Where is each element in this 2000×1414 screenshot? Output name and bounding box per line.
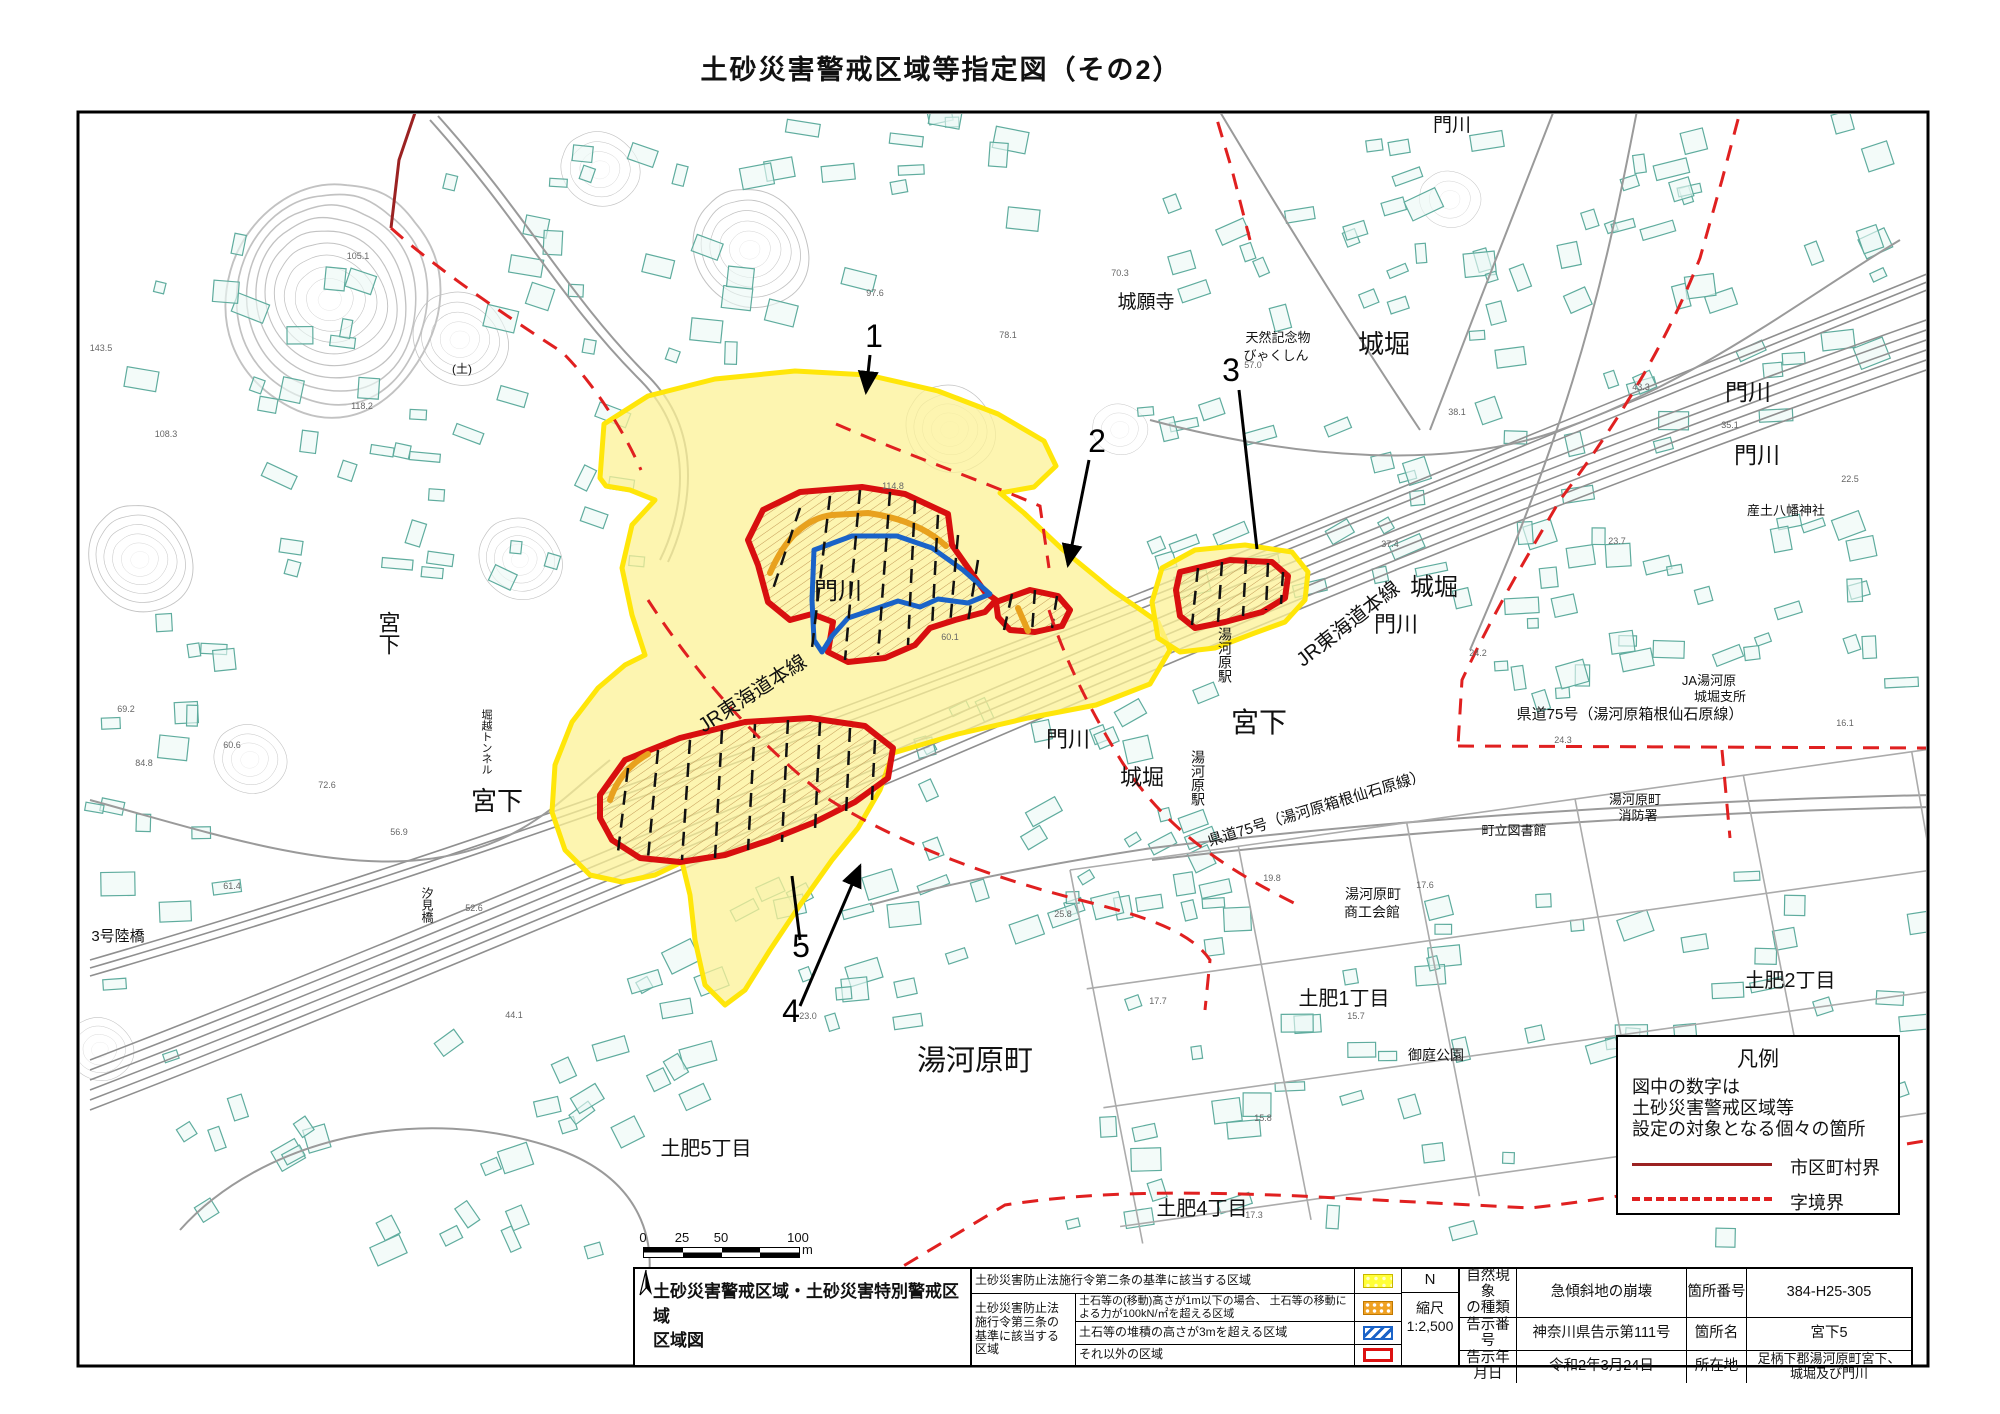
- map-sheet: 土砂災害警戒区域等指定図（その2）: [0, 0, 2000, 1414]
- title-block: 土砂災害警戒区域・土砂災害特別警戒区域 区域図 土砂災害防止法施行令第二条の基準…: [633, 1267, 1913, 1367]
- info-value: 神奈川県告示第111号: [1517, 1318, 1687, 1351]
- spot-elevation: 70.3: [1111, 268, 1129, 278]
- spot-elevation: 19.8: [1263, 873, 1281, 883]
- area-number: 4: [782, 993, 800, 1029]
- map-label: 城堀: [1358, 329, 1410, 359]
- map-label: 土肥5丁目: [660, 1137, 751, 1160]
- spot-elevation: 61.4: [223, 881, 241, 891]
- spot-elevation: 60.1: [941, 632, 959, 642]
- scale-tick-0: 0: [639, 1230, 646, 1245]
- spot-elevation: 22.5: [1841, 474, 1859, 484]
- map-label: 商工会館: [1344, 904, 1400, 920]
- map-label: 門川: [1046, 727, 1090, 752]
- scale-label: 縮尺: [1402, 1298, 1458, 1318]
- map-label: (土): [452, 362, 472, 376]
- map-label: 湯河原駅: [1190, 749, 1206, 806]
- info-label: 告示年月日: [1460, 1351, 1517, 1383]
- swatch-blue-accumulation: [1363, 1326, 1393, 1340]
- map-label: 湯河原駅: [1217, 626, 1233, 683]
- north-label: N: [1425, 1271, 1436, 1288]
- spot-elevation: 17.3: [1245, 1210, 1263, 1220]
- spot-elevation: 24.3: [1554, 735, 1572, 745]
- law2-row-label: 土砂災害防止法施行令第二条の基準に該当する区域: [972, 1269, 1354, 1294]
- scale-unit: m: [802, 1242, 813, 1257]
- spot-elevation: 60.6: [223, 740, 241, 750]
- spot-elevation: 143.5: [90, 343, 113, 353]
- map-label: 町立図書館: [1481, 823, 1546, 838]
- map-label: びゃくしん: [1243, 348, 1308, 363]
- info-label: 所在地: [1687, 1351, 1747, 1383]
- spot-elevation: 15.8: [1254, 1113, 1272, 1123]
- map-label: 門川: [1374, 612, 1418, 637]
- designation-info-table: 自然現象 の種類 急傾斜地の崩壊 箇所番号 384-H25-305 告示番号 神…: [1460, 1269, 1911, 1365]
- spot-elevation: 16.1: [1836, 718, 1854, 728]
- law3-row3-desc: それ以外の区域: [1076, 1345, 1354, 1365]
- scale-bar: 0 25 50 100 m: [620, 1230, 840, 1264]
- law3-group-label: 土砂災害防止法 施行令第三条の 基準に該当する 区域: [972, 1294, 1076, 1365]
- info-label: 自然現象 の種類: [1460, 1269, 1517, 1318]
- legend-title: 凡例: [1618, 1043, 1898, 1073]
- spot-elevation: 44.1: [505, 1010, 523, 1020]
- spot-elevation: 118.2: [351, 401, 373, 411]
- legend-table: 土砂災害防止法施行令第二条の基準に該当する区域 土砂災害防止法 施行令第三条の …: [972, 1269, 1355, 1365]
- spot-elevation: 17.7: [1149, 996, 1167, 1006]
- spot-elevation: 25.8: [1054, 909, 1072, 919]
- spot-elevation: 37.4: [1381, 539, 1399, 549]
- swatch-orange-debris: [1363, 1301, 1393, 1315]
- aza-boundary-sample-line: [1632, 1197, 1772, 1201]
- map-label: 御庭公園: [1408, 1047, 1464, 1063]
- map-label: 汐見橋: [420, 886, 434, 924]
- scale-value: 1:2,500: [1402, 1318, 1458, 1334]
- spot-elevation: 35.1: [1721, 420, 1739, 430]
- map-label: 土肥2丁目: [1744, 969, 1835, 992]
- map-label: 堀越トンネル: [480, 709, 493, 775]
- spot-elevation: 56.9: [390, 827, 408, 837]
- spot-elevation: 43.3: [1632, 382, 1650, 392]
- info-label: 箇所名: [1687, 1318, 1747, 1351]
- law3-row1-desc: 土石等の(移動)高さが1m以下の場合、 土石等の移動による力が100kN/㎡を超…: [1076, 1294, 1354, 1322]
- map-label: 消防署: [1618, 808, 1657, 823]
- sheet-title: 土砂災害警戒区域・土砂災害特別警戒区域 区域図: [635, 1269, 972, 1365]
- legend-swatches: [1355, 1269, 1402, 1365]
- municipal-boundary-label: 市区町村界: [1790, 1154, 1880, 1180]
- map-label: 天然記念物: [1245, 330, 1310, 345]
- info-label: 箇所番号: [1687, 1269, 1747, 1318]
- spot-elevation: 23.0: [799, 1011, 817, 1021]
- map-label: 宮下: [376, 611, 401, 655]
- map-label: 土肥1丁目: [1298, 987, 1389, 1010]
- map-legend: 凡例 図中の数字は 土砂災害警戒区域等 設定の対象となる個々の箇所 市区町村界 …: [1616, 1035, 1900, 1215]
- map-label: 産土八幡神社: [1747, 503, 1825, 518]
- map-label: 城堀支所: [1694, 689, 1746, 704]
- info-value: 令和2年3月24日: [1517, 1351, 1687, 1383]
- spot-elevation: 15.7: [1347, 1011, 1365, 1021]
- map-label: 宮下: [471, 786, 523, 816]
- north-arrow-icon: [635, 1269, 657, 1299]
- info-value: 宮下5: [1747, 1318, 1911, 1351]
- spot-elevation: 105.1: [347, 251, 370, 261]
- spot-elevation: 38.1: [1448, 407, 1466, 417]
- info-value: 急傾斜地の崩壊: [1517, 1269, 1687, 1318]
- swatch-yellow-warning: [1363, 1274, 1393, 1288]
- scale-tick-50: 50: [714, 1230, 728, 1245]
- map-label: 城堀: [1410, 574, 1458, 601]
- map-label: 門川: [1734, 442, 1780, 468]
- legend-note: 図中の数字は 土砂災害警戒区域等 設定の対象となる個々の箇所: [1632, 1077, 1898, 1141]
- spot-elevation: 24.2: [1469, 648, 1487, 658]
- spot-elevation: 23.7: [1608, 536, 1626, 546]
- map-label: 3号陸橋: [91, 928, 144, 945]
- area-number: 3: [1222, 352, 1240, 388]
- spot-elevation: 78.1: [999, 330, 1017, 340]
- spot-elevation: 52.6: [465, 903, 483, 913]
- map-label: JA湯河原: [1682, 673, 1736, 688]
- map-label: 門川: [814, 578, 862, 605]
- spot-elevation: 17.6: [1416, 880, 1434, 890]
- spot-elevation: 69.2: [117, 704, 135, 714]
- spot-elevation: 108.3: [155, 429, 178, 439]
- map-label: 城堀: [1505, 91, 1543, 113]
- info-value: 384-H25-305: [1747, 1269, 1911, 1318]
- spot-elevation: 114.8: [882, 481, 904, 491]
- spot-elevation: 97.6: [866, 288, 884, 298]
- compass-scale-cell: N 縮尺 1:2,500: [1402, 1269, 1460, 1365]
- municipal-boundary-sample-line: [1632, 1163, 1772, 1166]
- info-value: 足柄下郡湯河原町宮下、 城堀及び門川: [1747, 1351, 1911, 1383]
- map-label: 城堀: [1120, 765, 1164, 790]
- map-label: 城願寺: [1117, 291, 1174, 313]
- law3-row2-desc: 土石等の堆積の高さが3mを超える区域: [1076, 1322, 1354, 1345]
- map-label: 湯河原町: [917, 1045, 1033, 1077]
- scale-tick-25: 25: [675, 1230, 689, 1245]
- scale-bar-graphic: [643, 1247, 800, 1258]
- info-label: 告示番号: [1460, 1318, 1517, 1351]
- area-number: 2: [1088, 423, 1106, 459]
- map-label: 湯河原町: [1609, 792, 1661, 807]
- area-number: 1: [865, 318, 883, 354]
- map-label: 県道75号（湯河原箱根仙石原線）: [1517, 706, 1744, 723]
- map-label: 門川: [1433, 115, 1471, 136]
- map-label: 土肥4丁目: [1156, 1197, 1247, 1220]
- spot-elevation: 84.8: [135, 758, 153, 768]
- map-label: 宮下: [1231, 707, 1287, 738]
- spot-elevation: 72.6: [318, 780, 336, 790]
- aza-boundary-label: 字境界: [1790, 1189, 1844, 1215]
- map-label: 城堀: [1445, 53, 1483, 75]
- area-number: 5: [792, 928, 810, 964]
- map-label: 門川: [1725, 379, 1771, 405]
- map-label: 湯河原町: [1345, 886, 1401, 902]
- swatch-red-other: [1363, 1348, 1393, 1362]
